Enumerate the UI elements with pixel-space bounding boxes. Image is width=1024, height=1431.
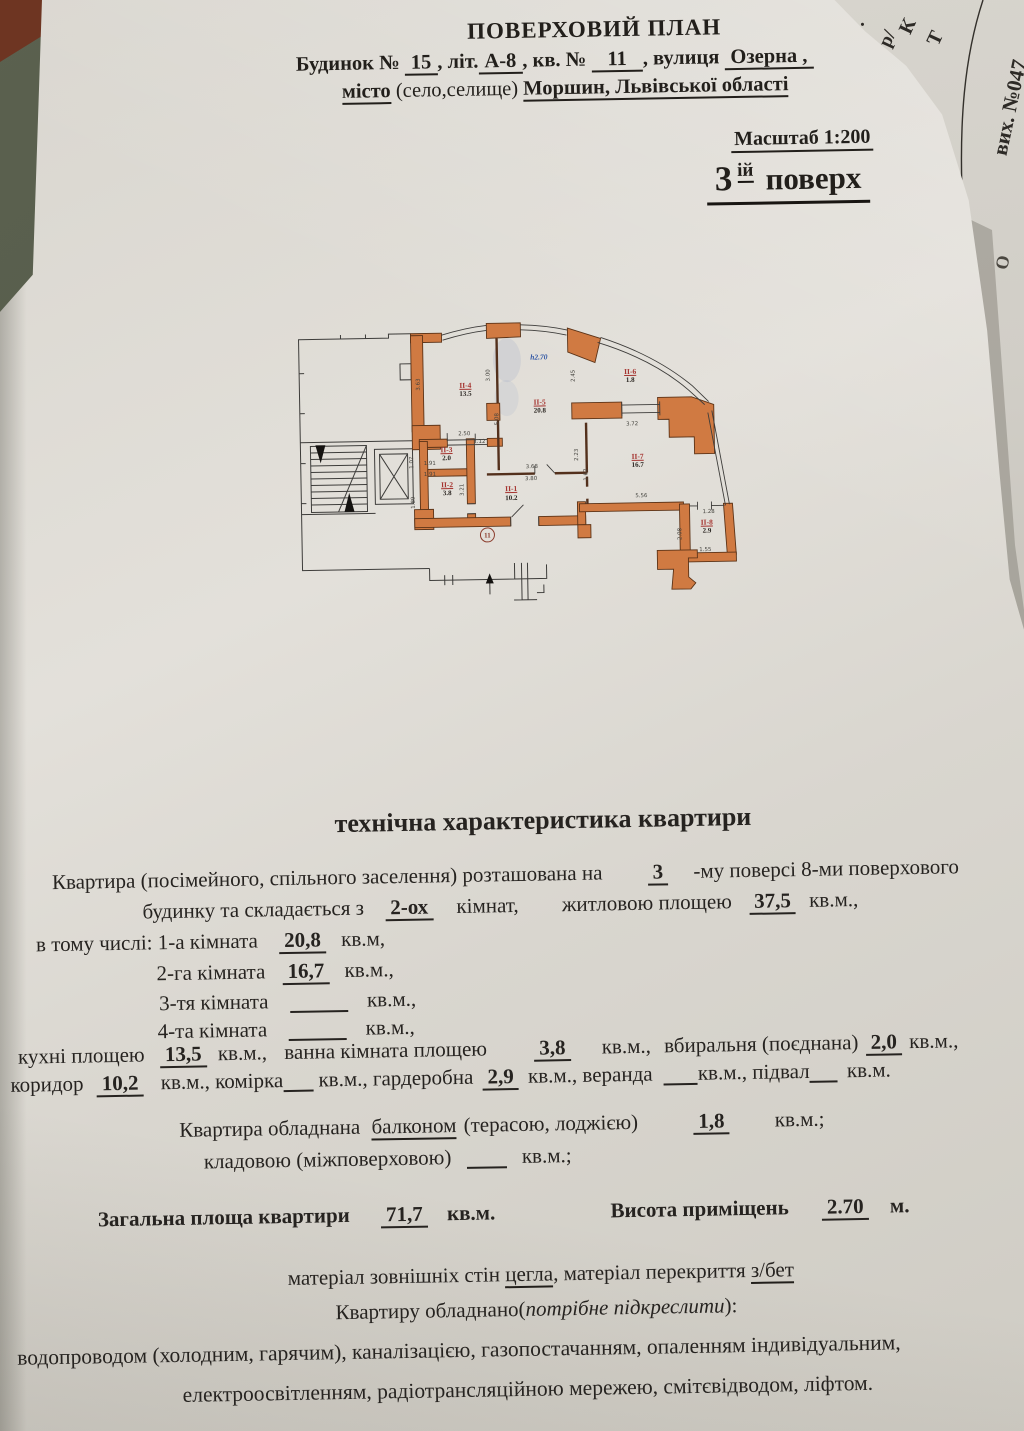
room-area: 1.8 (613, 376, 647, 385)
dimension: 3.68 (526, 464, 538, 470)
city-label: місто (342, 80, 391, 105)
text-run: житловою площею (562, 889, 732, 916)
floor-value: 3 (647, 859, 668, 885)
room-2-line: 2-га кімната 16,7 кв.м., (156, 957, 394, 986)
text-run: -му поверсі 8-ми поверхового (693, 854, 959, 883)
balcony-line: Квартира обладнана балконом (терасою, ло… (179, 1107, 825, 1143)
lower-floor-outline (429, 562, 547, 601)
room-area: 16.7 (621, 461, 655, 470)
blank-underline (283, 1090, 313, 1093)
dimension: 3.00 (486, 369, 492, 381)
city-hint: (село,селище) (396, 78, 519, 102)
text-run: кв.м.; (522, 1143, 572, 1168)
stairs-down-arrow (315, 445, 325, 463)
dimension: 1.07 (409, 457, 415, 469)
underline-hint-italic: потрібне підкреслити (525, 1293, 724, 1320)
dimension: 1.91 (424, 472, 436, 478)
materials-line: матеріал зовнішніх стін цегла, матеріал … (14, 1253, 1024, 1296)
total-area-value: 71,7 (381, 1202, 428, 1229)
text-run: Квартира (посімейного, спільного заселен… (52, 860, 603, 894)
balcony-word-underlined: балконом (371, 1113, 456, 1140)
corridor-area-value: 10,2 (97, 1071, 144, 1098)
floor-heading: 3ійповерх (706, 157, 869, 206)
room-area: 20.8 (523, 406, 557, 415)
dimension: 1.62 (583, 468, 589, 480)
text-run: кв.м. (847, 1057, 891, 1082)
floor-ordinal-suffix: ій (737, 160, 754, 183)
address-label: Будинок № (296, 52, 400, 76)
blank-underline (664, 1083, 698, 1086)
dimension: 2.23 (574, 449, 580, 461)
city-value: Моршин, Львівської області (523, 73, 789, 102)
room-label: ІІ-1 (494, 485, 528, 494)
text-run: кв.м., (602, 1034, 652, 1059)
dimension: 1.28 (703, 509, 715, 515)
text-run: , матеріал перекриття (553, 1258, 746, 1285)
text-run: кв.м. (447, 1200, 496, 1225)
ceiling-height-value: 2.70 (822, 1194, 869, 1221)
equipped-heading: Квартиру обладнано(потрібне підкреслити)… (14, 1288, 1024, 1331)
blank-underline (467, 1166, 507, 1169)
blank-underline (810, 1080, 838, 1082)
room-2-area-value: 16,7 (282, 958, 329, 985)
wall-material-value: цегла (505, 1261, 553, 1288)
apartment-number: 11 (591, 48, 643, 73)
text-run: кв.м., (367, 987, 417, 1012)
text-run: кладовою (міжповерховою) (204, 1145, 452, 1173)
text-run: кв.м., підвал (698, 1059, 810, 1085)
text-run: коридор (10, 1072, 83, 1097)
document-content: ПОВЕРХОВИЙ ПЛАН Будинок № 15, літ.А-8, к… (0, 0, 1024, 1431)
text-run: в тому числі: 1-а кімната (36, 929, 258, 957)
building-number: 15 (405, 51, 438, 76)
text-run: (терасою, лоджією) (463, 1110, 638, 1137)
dimension: 1.12 (473, 439, 485, 445)
floor-plan: ІІ-4 13.5 ІІ-5 20.8 h2.70 ІІ-6 1.8 ІІ-7 … (280, 308, 745, 606)
text-run: кв.м., веранда (528, 1062, 653, 1088)
stairs (310, 445, 367, 513)
address-label: , кв. № (522, 49, 586, 72)
floor-plan-drawing (280, 308, 745, 606)
toilet-area-value: 2,0 (865, 1029, 902, 1056)
text-run: кв.м., комірка (161, 1068, 284, 1094)
text-run: кухні площею (18, 1043, 145, 1069)
dimension: 2.50 (458, 431, 470, 437)
text-run: кв.м., (218, 1040, 268, 1065)
ceiling-height-label: Висота приміщень (610, 1195, 789, 1222)
wardrobe-area-value: 2,9 (482, 1064, 519, 1091)
dimension: 2.45 (571, 370, 577, 382)
text-run: кв.м, (341, 926, 385, 951)
text-run: кімнат, (456, 893, 519, 918)
rooms-count-value: 2-ох (385, 894, 433, 921)
scale-label: Масштаб 1:200 (731, 126, 874, 151)
text-run: кв.м., (909, 1028, 959, 1053)
scale-value: Масштаб 1:200 (731, 126, 874, 153)
address-label: , літ. (437, 51, 478, 74)
text-run: 3-тя кімната (159, 989, 269, 1015)
living-area-value: 37,5 (749, 888, 796, 915)
street-name: Озерна , (724, 45, 813, 71)
entrance-door (510, 505, 538, 526)
utilities-line-2: електроосвітленням, радіотрансляційною м… (16, 1368, 1024, 1411)
text-run: ванна кімната площею (284, 1037, 487, 1065)
dimension: 5.56 (635, 493, 647, 499)
ceiling-height-note: h2.70 (519, 352, 559, 362)
dimension: 1.89 (411, 497, 417, 509)
storeroom-line: кладовою (міжповерховою) кв.м.; (204, 1143, 572, 1174)
text-run: кв.м.; (775, 1107, 825, 1132)
letter-code: А-8 (478, 50, 522, 75)
text-run: 2-га кімната (156, 959, 265, 985)
balcony-area-value: 1,8 (693, 1108, 730, 1135)
dimension: 3.72 (626, 421, 638, 427)
entrance-arrow (486, 573, 494, 583)
dimension: 5.08 (494, 413, 500, 425)
dimension: 2.08 (677, 528, 683, 540)
dimension: 1.91 (424, 461, 436, 467)
tech-section-title: технічна характеристика квартири (6, 797, 1024, 845)
room-3-line: 3-тя кімната кв.м., (159, 987, 416, 1016)
text-run: кв.м., гардеробна (318, 1065, 473, 1092)
text-run: кв.м., (809, 887, 859, 912)
total-area-label: Загальна площа квартири (98, 1203, 350, 1231)
bathroom-area-value: 3,8 (534, 1035, 571, 1062)
text-run: Квартира обладнана (179, 1115, 360, 1142)
tech-paragraph-line: будинку та складається з 2-ох кімнат, жи… (142, 887, 858, 924)
dimension: 3.63 (416, 378, 422, 390)
text-run: матеріал зовнішніх стін (288, 1262, 501, 1290)
text-run: ): (724, 1293, 737, 1317)
text-run: м. (890, 1193, 910, 1217)
text-run: кв.м., (344, 957, 394, 982)
total-area-line: Загальна площа квартири 71,7 кв.м. Висот… (98, 1193, 910, 1232)
text-run: Квартиру обладнано( (335, 1297, 525, 1324)
address-label: , вулиця (643, 46, 720, 69)
utilities-line-1: водопроводом (холодним, гарячим), каналі… (17, 1328, 1024, 1371)
room-area: 13.5 (448, 390, 482, 399)
text-run: 4-та кімната (157, 1017, 267, 1043)
text-run: будинку та складається з (142, 896, 364, 924)
room-area: 10.2 (494, 494, 528, 503)
dimension: 1.55 (699, 547, 711, 553)
blank-underline (290, 1010, 348, 1013)
floor-word: поверх (765, 160, 861, 197)
dimension: 3.80 (525, 476, 537, 482)
room-area: 2.9 (690, 526, 724, 535)
apartment-number-value: 11 (484, 531, 491, 539)
dimension: 3.21 (460, 484, 466, 496)
photo-of-document: к. 8. р/ К Т вих. №047 О ПОВЕРХОВИЙ ПЛАН… (0, 0, 1024, 1431)
room-1-area-value: 20,8 (279, 927, 326, 954)
slab-material-value: з/бет (751, 1257, 794, 1284)
floor-number: 3 (714, 159, 732, 198)
text-run: кв.м., (365, 1015, 415, 1040)
text-run: вбиральня (поєднана) (664, 1030, 859, 1057)
room-1-line: в тому числі: 1-а кімната 20,8 кв.м, (36, 926, 385, 957)
document-sheet: ПОВЕРХОВИЙ ПЛАН Будинок № 15, літ.А-8, к… (0, 0, 1024, 1431)
kitchen-area-value: 13,5 (160, 1041, 207, 1068)
